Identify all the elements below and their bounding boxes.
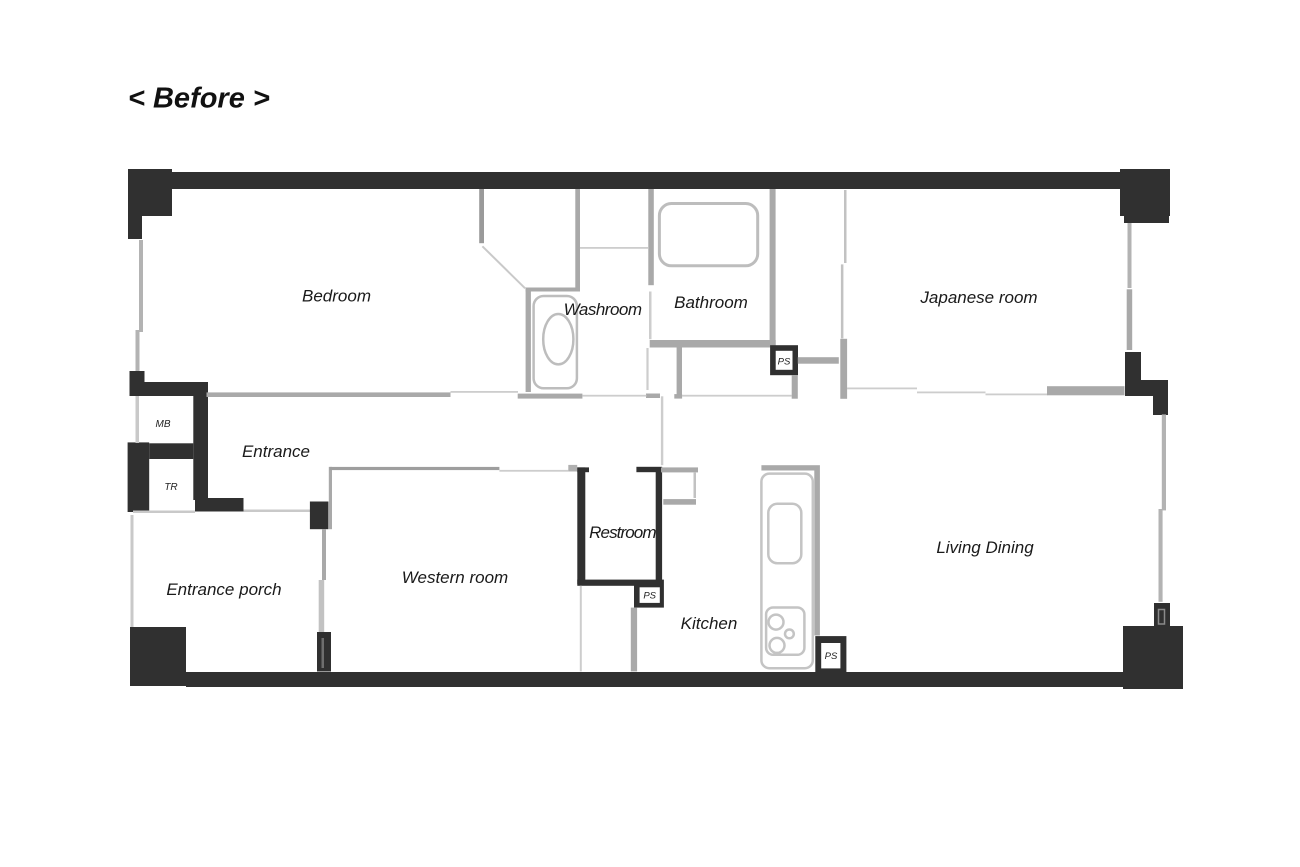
svg-text:Restroom: Restroom (589, 523, 656, 542)
svg-text:Washroom: Washroom (564, 300, 642, 319)
svg-text:Entrance: Entrance (242, 442, 310, 461)
svg-text:PS: PS (778, 357, 791, 368)
svg-text:MB: MB (156, 419, 171, 430)
svg-text:Bedroom: Bedroom (302, 287, 371, 306)
svg-text:Western room: Western room (402, 568, 508, 587)
svg-text:Bathroom: Bathroom (674, 293, 748, 312)
svg-text:Japanese room: Japanese room (919, 288, 1037, 307)
svg-text:< Before >: < Before > (128, 83, 270, 115)
svg-text:Living Dining: Living Dining (936, 538, 1034, 557)
svg-text:TR: TR (164, 482, 177, 493)
svg-text:Entrance porch: Entrance porch (166, 580, 281, 599)
svg-text:Kitchen: Kitchen (681, 614, 738, 633)
svg-text:PS: PS (825, 651, 838, 662)
svg-text:PS: PS (643, 591, 656, 602)
